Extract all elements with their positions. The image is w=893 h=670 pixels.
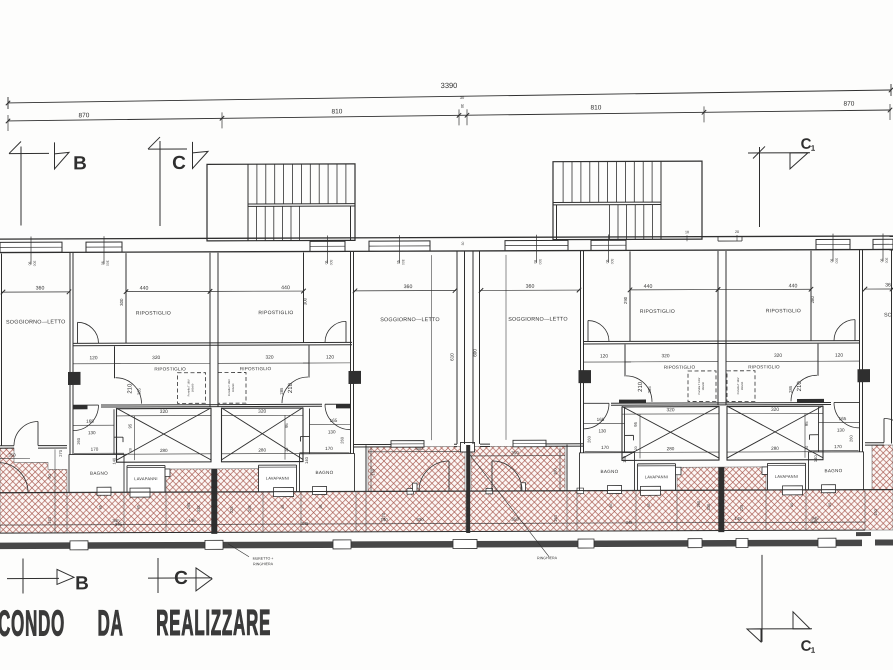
svg-text:320: 320 bbox=[258, 409, 266, 415]
svg-text:320: 320 bbox=[265, 355, 273, 361]
svg-text:870: 870 bbox=[844, 101, 855, 108]
svg-text:280: 280 bbox=[771, 446, 779, 451]
svg-text:225: 225 bbox=[739, 504, 744, 511]
svg-text:85: 85 bbox=[281, 505, 285, 509]
svg-text:Portella T 160/: Portella T 160/ bbox=[736, 377, 740, 394]
svg-text:280: 280 bbox=[258, 448, 266, 453]
svg-text:285: 285 bbox=[279, 387, 284, 395]
svg-text:130: 130 bbox=[837, 428, 845, 433]
svg-text:90: 90 bbox=[880, 259, 884, 263]
svg-text:120: 120 bbox=[326, 354, 334, 360]
svg-text:B: B bbox=[73, 153, 87, 174]
svg-text:SO: SO bbox=[884, 312, 892, 318]
svg-text:280: 280 bbox=[667, 446, 675, 451]
svg-text:210: 210 bbox=[638, 381, 644, 392]
svg-text:160x90: 160x90 bbox=[231, 383, 235, 392]
svg-text:RINGHIERA: RINGHIERA bbox=[537, 556, 558, 560]
svg-text:160: 160 bbox=[371, 468, 376, 475]
svg-text:440: 440 bbox=[140, 286, 149, 292]
svg-text:360: 360 bbox=[526, 284, 535, 290]
svg-text:85: 85 bbox=[647, 503, 651, 507]
svg-text:260: 260 bbox=[587, 435, 592, 442]
svg-text:165: 165 bbox=[839, 416, 847, 421]
svg-text:30: 30 bbox=[460, 95, 465, 100]
svg-text:120: 120 bbox=[89, 355, 97, 361]
svg-text:210: 210 bbox=[797, 381, 803, 392]
svg-text:165: 165 bbox=[86, 419, 94, 424]
svg-text:225: 225 bbox=[229, 506, 234, 513]
svg-text:85: 85 bbox=[137, 505, 141, 509]
svg-text:440: 440 bbox=[281, 285, 290, 291]
svg-text:320: 320 bbox=[661, 353, 669, 359]
svg-text:95: 95 bbox=[633, 421, 638, 426]
svg-text:285: 285 bbox=[788, 385, 793, 393]
svg-text:170: 170 bbox=[381, 512, 386, 519]
svg-text:20: 20 bbox=[735, 230, 739, 234]
svg-text:120: 120 bbox=[600, 353, 608, 359]
svg-text:300: 300 bbox=[835, 258, 839, 264]
svg-text:160x90: 160x90 bbox=[740, 381, 744, 390]
svg-text:300: 300 bbox=[32, 261, 36, 267]
svg-text:RIPOSTIGLIO: RIPOSTIGLIO bbox=[154, 366, 186, 371]
svg-text:90: 90 bbox=[27, 262, 31, 266]
svg-text:280: 280 bbox=[160, 448, 168, 453]
svg-text:90: 90 bbox=[324, 261, 328, 265]
svg-text:300: 300 bbox=[538, 259, 542, 265]
svg-text:610: 610 bbox=[450, 353, 455, 361]
svg-text:140: 140 bbox=[304, 456, 309, 463]
svg-text:320: 320 bbox=[152, 355, 160, 361]
svg-text:320: 320 bbox=[160, 409, 168, 415]
svg-text:BAGNO: BAGNO bbox=[824, 468, 842, 473]
svg-text:300: 300 bbox=[401, 259, 405, 265]
svg-text:LAVAPANNI: LAVAPANNI bbox=[134, 476, 157, 481]
svg-text:300: 300 bbox=[610, 259, 614, 265]
svg-text:10: 10 bbox=[685, 230, 689, 234]
svg-text:95: 95 bbox=[284, 423, 289, 428]
svg-text:36: 36 bbox=[885, 282, 891, 288]
svg-text:270: 270 bbox=[58, 449, 63, 456]
svg-text:20: 20 bbox=[285, 448, 289, 452]
svg-text:300: 300 bbox=[329, 260, 333, 266]
svg-text:BAGNO: BAGNO bbox=[315, 470, 333, 475]
svg-text:330: 330 bbox=[416, 517, 424, 522]
svg-text:C: C bbox=[172, 153, 186, 174]
svg-text:90: 90 bbox=[830, 259, 834, 263]
svg-text:285: 285 bbox=[137, 387, 142, 395]
svg-text:205: 205 bbox=[247, 505, 252, 512]
svg-text:440: 440 bbox=[789, 283, 798, 289]
svg-text:350: 350 bbox=[511, 517, 519, 522]
svg-text:145: 145 bbox=[188, 518, 196, 523]
svg-text:600: 600 bbox=[473, 349, 478, 357]
svg-text:85: 85 bbox=[828, 503, 832, 507]
svg-text:LAVAPANNI: LAVAPANNI bbox=[775, 474, 798, 479]
svg-text:1: 1 bbox=[811, 646, 816, 655]
svg-text:85: 85 bbox=[319, 504, 323, 508]
svg-text:150: 150 bbox=[873, 508, 878, 515]
svg-text:285: 285 bbox=[647, 386, 652, 394]
svg-text:335: 335 bbox=[706, 503, 711, 510]
svg-text:300: 300 bbox=[885, 258, 889, 264]
svg-text:290: 290 bbox=[623, 296, 628, 304]
svg-text:260: 260 bbox=[849, 435, 854, 442]
svg-text:810: 810 bbox=[332, 108, 343, 115]
svg-text:SOGGIORNO—LETTO: SOGGIORNO—LETTO bbox=[380, 317, 440, 323]
svg-text:Portella T 160/: Portella T 160/ bbox=[697, 377, 701, 394]
svg-text:165: 165 bbox=[330, 418, 338, 423]
svg-text:170: 170 bbox=[601, 445, 609, 450]
svg-text:140: 140 bbox=[112, 457, 117, 464]
svg-text:320: 320 bbox=[666, 407, 674, 413]
svg-text:335: 335 bbox=[196, 505, 201, 512]
svg-text:LAVAPANNI: LAVAPANNI bbox=[645, 474, 668, 479]
svg-text:160x90: 160x90 bbox=[191, 383, 195, 392]
svg-text:120: 120 bbox=[835, 353, 843, 359]
svg-text:170: 170 bbox=[325, 446, 333, 451]
svg-text:360: 360 bbox=[36, 285, 45, 291]
svg-text:345: 345 bbox=[302, 521, 310, 526]
svg-text:RIPOSTIGLIO: RIPOSTIGLIO bbox=[136, 311, 171, 317]
svg-text:85: 85 bbox=[790, 503, 794, 507]
svg-text:300: 300 bbox=[303, 297, 308, 305]
svg-text:1: 1 bbox=[811, 144, 816, 153]
svg-text:345: 345 bbox=[115, 522, 123, 527]
svg-text:85: 85 bbox=[609, 503, 613, 507]
svg-text:95: 95 bbox=[128, 423, 133, 428]
svg-text:300: 300 bbox=[119, 298, 124, 306]
svg-text:160: 160 bbox=[553, 468, 558, 475]
svg-text:345: 345 bbox=[626, 520, 634, 525]
svg-text:90: 90 bbox=[533, 260, 537, 264]
svg-text:265: 265 bbox=[186, 502, 191, 509]
svg-text:150: 150 bbox=[553, 515, 558, 522]
svg-text:20: 20 bbox=[129, 448, 133, 452]
svg-text:130: 130 bbox=[598, 428, 606, 433]
svg-text:RIPOSTIGLIO: RIPOSTIGLIO bbox=[258, 310, 293, 316]
svg-text:170: 170 bbox=[47, 516, 52, 523]
svg-text:345: 345 bbox=[811, 519, 819, 524]
svg-text:B: B bbox=[75, 573, 89, 594]
svg-text:260: 260 bbox=[340, 436, 345, 443]
svg-text:130: 130 bbox=[328, 429, 336, 434]
svg-text:140: 140 bbox=[813, 455, 818, 462]
svg-text:30: 30 bbox=[461, 241, 465, 245]
svg-text:130: 130 bbox=[88, 430, 96, 435]
svg-text:360: 360 bbox=[404, 284, 413, 290]
svg-text:SOGGIORNO—LETTO: SOGGIORNO—LETTO bbox=[508, 317, 568, 323]
svg-text:RIPOSTIGLIO: RIPOSTIGLIO bbox=[766, 308, 801, 314]
svg-text:RINGHIERA: RINGHIERA bbox=[253, 562, 274, 566]
svg-text:MURETTO +: MURETTO + bbox=[253, 557, 274, 561]
svg-text:300: 300 bbox=[105, 260, 109, 266]
svg-text:90: 90 bbox=[100, 261, 104, 265]
svg-text:RIPOSTIGLIO: RIPOSTIGLIO bbox=[240, 366, 272, 371]
svg-text:170: 170 bbox=[834, 444, 842, 449]
svg-text:210: 210 bbox=[288, 382, 294, 393]
svg-text:RIPOSTIGLIO: RIPOSTIGLIO bbox=[748, 364, 780, 369]
svg-text:20: 20 bbox=[634, 446, 638, 450]
svg-text:3390: 3390 bbox=[441, 81, 458, 90]
svg-text:145: 145 bbox=[734, 516, 742, 521]
svg-text:Portella T 160/: Portella T 160/ bbox=[187, 379, 191, 396]
svg-text:440: 440 bbox=[644, 284, 653, 290]
svg-text:265: 265 bbox=[696, 500, 701, 507]
svg-text:350: 350 bbox=[511, 450, 519, 455]
svg-text:810: 810 bbox=[591, 104, 602, 111]
svg-text:350: 350 bbox=[8, 453, 16, 458]
svg-text:90: 90 bbox=[605, 260, 609, 264]
svg-text:BAGNO: BAGNO bbox=[600, 469, 618, 474]
svg-text:280: 280 bbox=[810, 296, 815, 304]
svg-text:160x90: 160x90 bbox=[701, 381, 705, 390]
svg-text:320: 320 bbox=[774, 353, 782, 359]
svg-text:95: 95 bbox=[804, 421, 809, 426]
svg-text:90: 90 bbox=[396, 260, 400, 264]
svg-text:260: 260 bbox=[76, 437, 81, 444]
svg-text:90: 90 bbox=[47, 473, 52, 478]
svg-text:165: 165 bbox=[597, 417, 605, 422]
svg-text:320: 320 bbox=[771, 407, 779, 413]
svg-text:RIPOSTIGLIO: RIPOSTIGLIO bbox=[664, 365, 696, 370]
svg-text:CONDO DA REALIZZARE: CONDO DA REALIZZARE bbox=[0, 601, 271, 643]
svg-text:870: 870 bbox=[79, 112, 90, 119]
svg-text:BAGNO: BAGNO bbox=[90, 471, 108, 476]
svg-text:Portella T 160/: Portella T 160/ bbox=[227, 379, 231, 396]
svg-text:210: 210 bbox=[128, 383, 134, 394]
svg-text:20: 20 bbox=[805, 446, 809, 450]
svg-text:RIPOSTIGLIO: RIPOSTIGLIO bbox=[640, 309, 675, 315]
svg-text:85: 85 bbox=[99, 505, 103, 509]
svg-text:30: 30 bbox=[460, 104, 464, 108]
svg-text:C: C bbox=[174, 568, 188, 589]
svg-text:170: 170 bbox=[91, 447, 99, 452]
svg-text:SOGGIORNO—LETTO: SOGGIORNO—LETTO bbox=[6, 319, 66, 325]
svg-text:LAVAPANNI: LAVAPANNI bbox=[266, 476, 289, 481]
